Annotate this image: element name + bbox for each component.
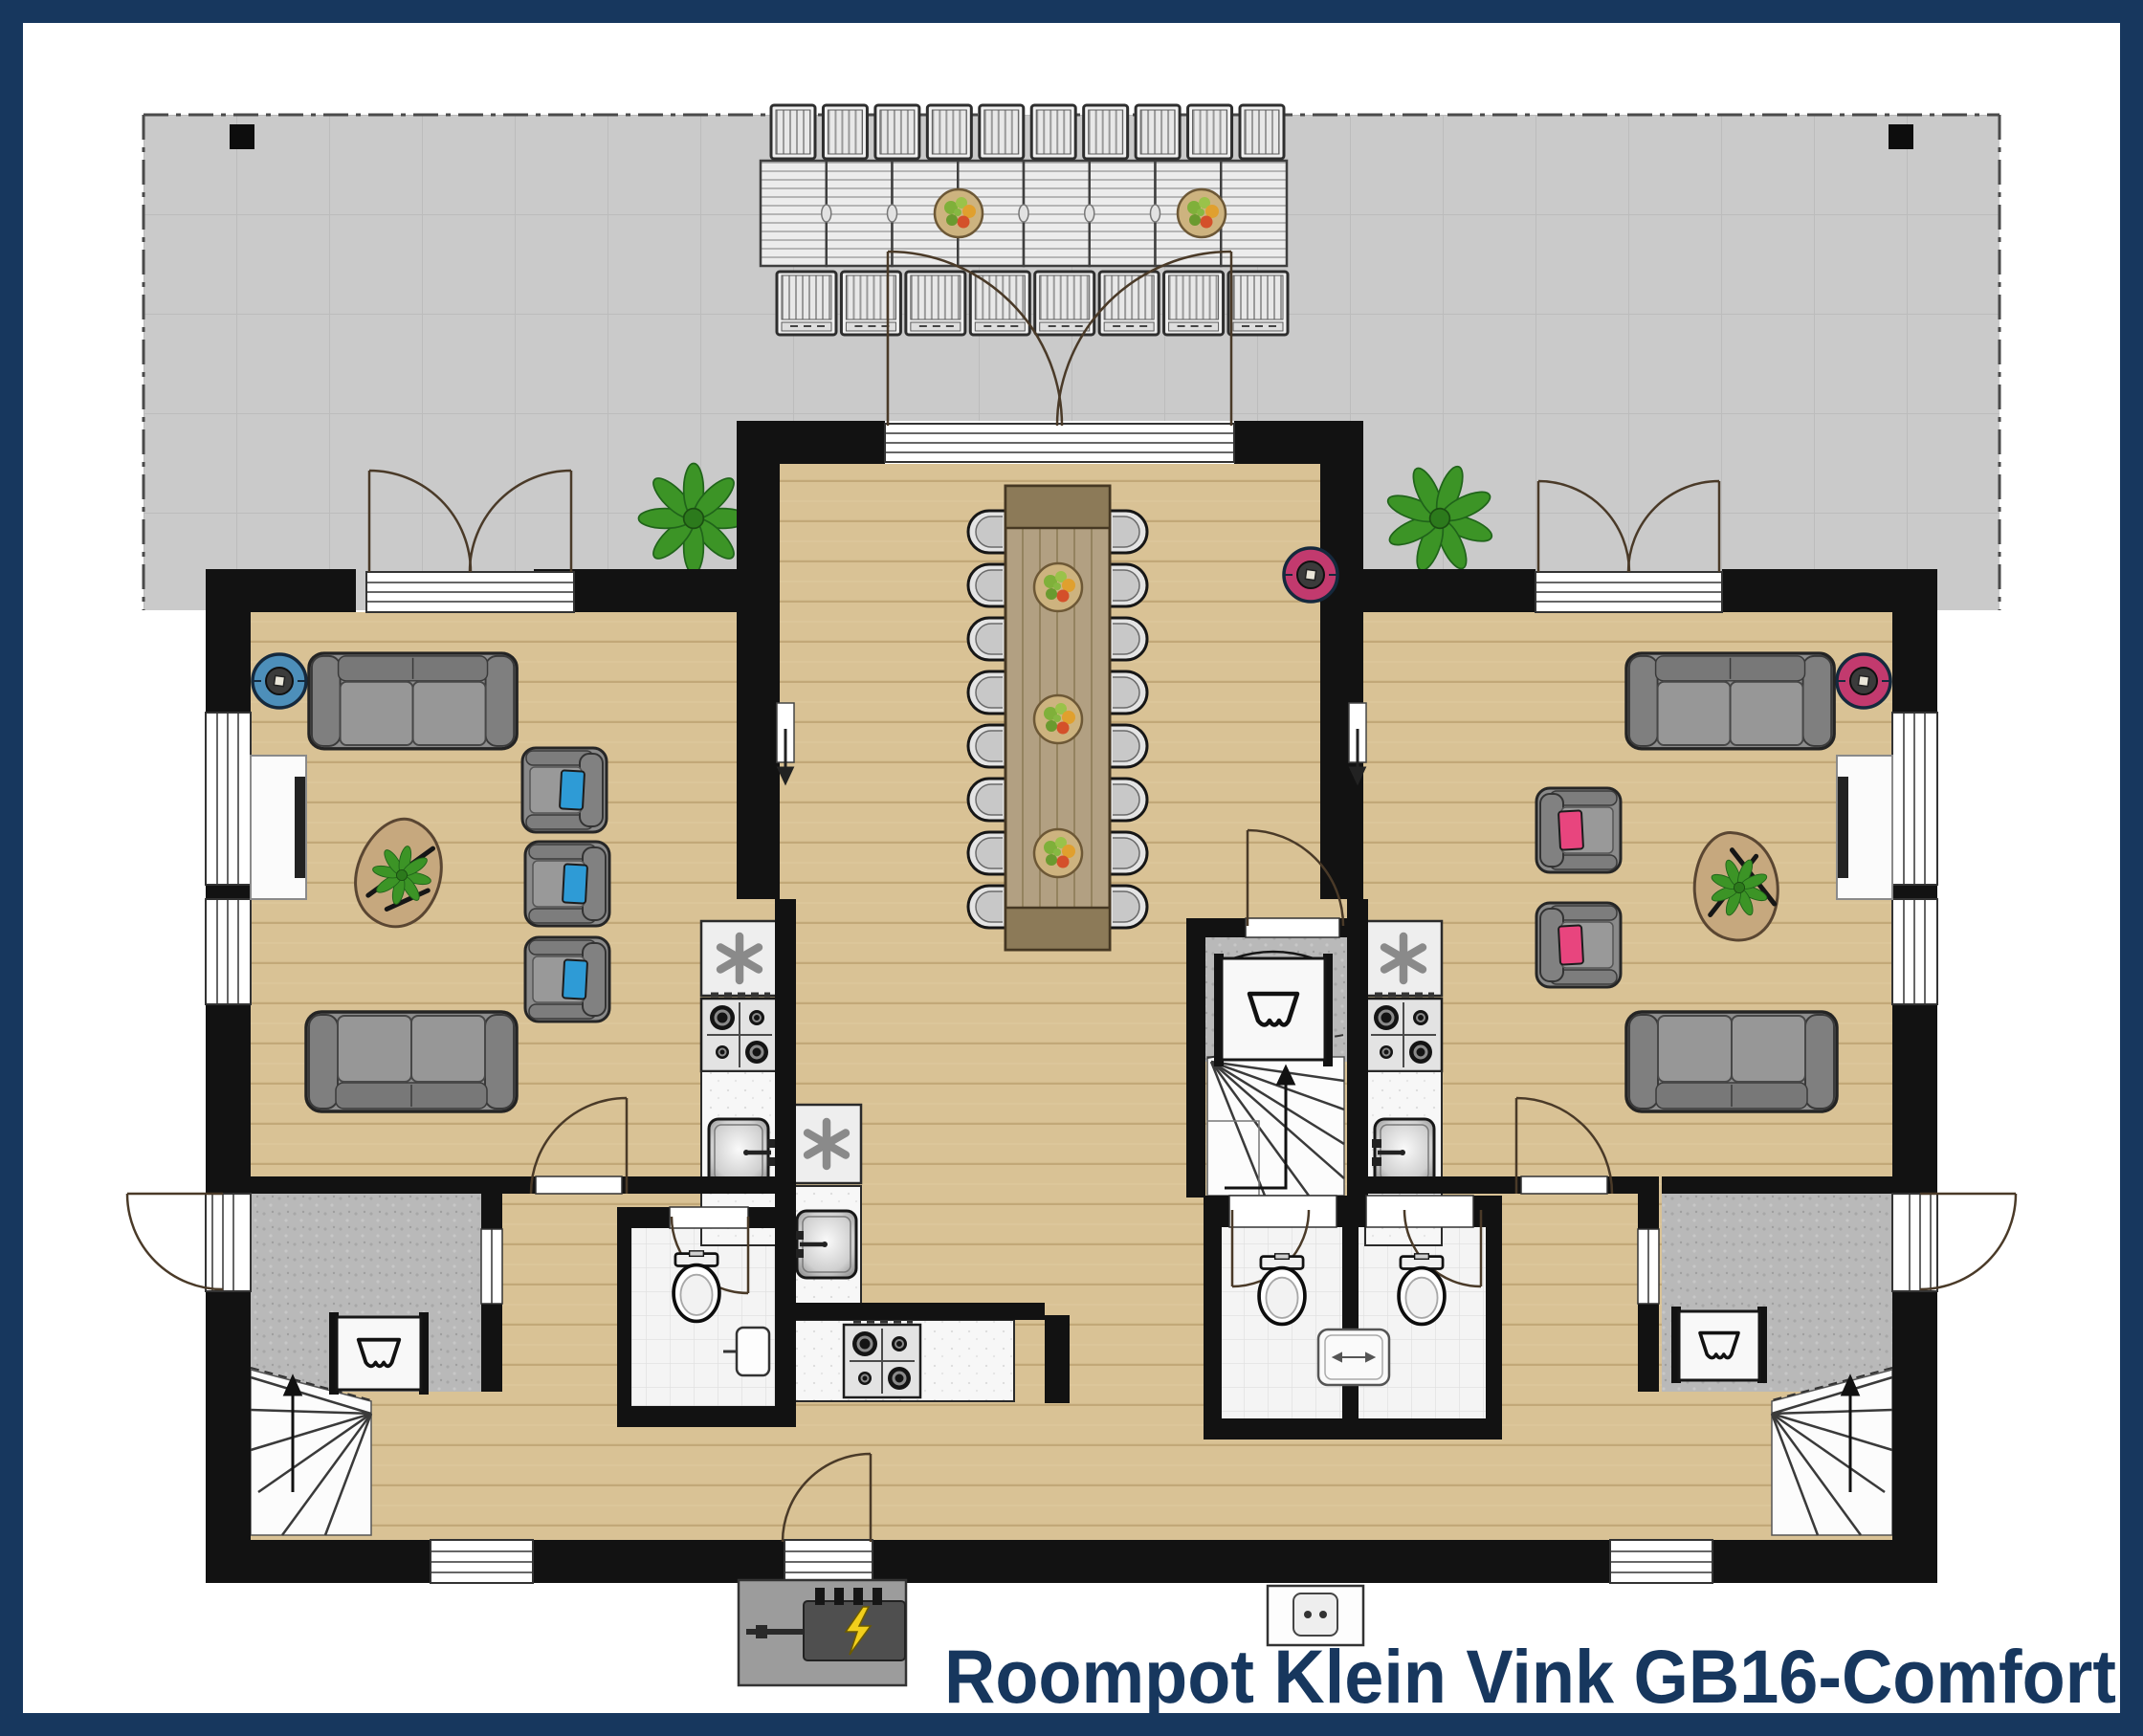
front-door-left [127, 1194, 251, 1291]
window [1892, 899, 1937, 1004]
terrace-corner-marker [1889, 124, 1913, 149]
dining-chair [968, 618, 1005, 660]
dining-chair [1110, 564, 1147, 606]
outdoor-chair [823, 105, 867, 159]
sofa [1626, 1012, 1837, 1111]
outdoor-table-segment [1090, 161, 1156, 266]
sofa [309, 653, 517, 749]
plan-title: Roompot Klein Vink GB16-Comfort [944, 1634, 2116, 1719]
window [1892, 713, 1937, 885]
dining-chair [1110, 618, 1147, 660]
left-kitchen [701, 921, 778, 1245]
gas-hob-icon [1365, 995, 1442, 1071]
tv-unit [1837, 756, 1892, 899]
toilet [1399, 1254, 1445, 1325]
armchair [1536, 903, 1621, 987]
outdoor-chair [1136, 105, 1180, 159]
floorplan-page: Roompot Klein Vink GB16-Comfort [0, 0, 2143, 1736]
armchair [525, 842, 609, 926]
outdoor-chair [1031, 105, 1075, 159]
outdoor-lounger [1228, 272, 1288, 335]
outdoor-lounger [970, 272, 1029, 335]
terrace-plant [639, 464, 749, 574]
shared-basin [1318, 1329, 1389, 1385]
outdoor-lounger [841, 272, 900, 335]
wardrobe [1679, 1311, 1759, 1380]
wardrobe [1222, 952, 1325, 1060]
outdoor-table-segment [1221, 161, 1287, 266]
armchair [522, 748, 607, 832]
dining-chair [968, 564, 1005, 606]
window [431, 1540, 533, 1583]
outdoor-lounger [1164, 272, 1224, 335]
outdoor-lounger [906, 272, 965, 335]
outdoor-chair [980, 105, 1024, 159]
dining-chair [1110, 725, 1147, 767]
fruit-bowl [1178, 189, 1226, 237]
dining-chair [1110, 511, 1147, 553]
window [1610, 1540, 1712, 1583]
fruit-bowl [935, 189, 983, 237]
toilet [1259, 1254, 1305, 1325]
outdoor-table-segment [761, 161, 827, 266]
window [206, 899, 251, 1004]
wardrobe [337, 1317, 421, 1390]
pink-ring-ornament [1284, 548, 1337, 602]
outdoor-chair [927, 105, 971, 159]
tv-icon [1838, 777, 1848, 878]
floorplan-drawing: Roompot Klein Vink GB16-Comfort [0, 0, 2143, 1736]
table-plate [888, 205, 897, 222]
fruit-bowl [1034, 563, 1082, 611]
sofa [306, 1012, 517, 1111]
outdoor-table-segment [1024, 161, 1090, 266]
armchairs-blue [522, 748, 609, 1022]
toilet [674, 1251, 719, 1322]
dining-chair [1110, 832, 1147, 874]
table-plate [1019, 205, 1028, 222]
outdoor-chair [875, 105, 919, 159]
sidelight-window [1638, 1229, 1659, 1304]
dining-chair [1110, 886, 1147, 928]
dining-chair [968, 886, 1005, 928]
gas-hob-icon [844, 1321, 920, 1397]
armchair [1536, 788, 1621, 872]
fruit-bowl [1034, 829, 1082, 877]
pink-ring-ornament [1837, 654, 1890, 708]
dining-chair [968, 832, 1005, 874]
table-plate [1085, 205, 1094, 222]
table-plate [822, 205, 831, 222]
outdoor-table-segment [827, 161, 893, 266]
outdoor-chair [1188, 105, 1232, 159]
sofa [1626, 653, 1834, 749]
sidelight-window [481, 1229, 502, 1304]
dining-chair [968, 779, 1005, 821]
dining-chair [1110, 671, 1147, 714]
table-plate [1151, 205, 1160, 222]
outdoor-chair [1084, 105, 1128, 159]
tv-unit [251, 756, 306, 899]
dining-chair [968, 511, 1005, 553]
outdoor-lounger [1035, 272, 1094, 335]
dining-chair [1110, 779, 1147, 821]
dining-chair [968, 671, 1005, 714]
front-door-right [1892, 1194, 2016, 1291]
outdoor-lounger [777, 272, 836, 335]
electric-meter [739, 1580, 906, 1685]
outdoor-chair [771, 105, 815, 159]
tv-icon [295, 777, 305, 878]
gas-hob-icon [701, 995, 778, 1071]
dining-chair [968, 725, 1005, 767]
fruit-bowl [1034, 695, 1082, 743]
armchair [525, 937, 609, 1022]
window [206, 713, 251, 885]
blue-ring-ornament [253, 654, 306, 708]
terrace-corner-marker [230, 124, 254, 149]
outdoor-chair [1240, 105, 1284, 159]
